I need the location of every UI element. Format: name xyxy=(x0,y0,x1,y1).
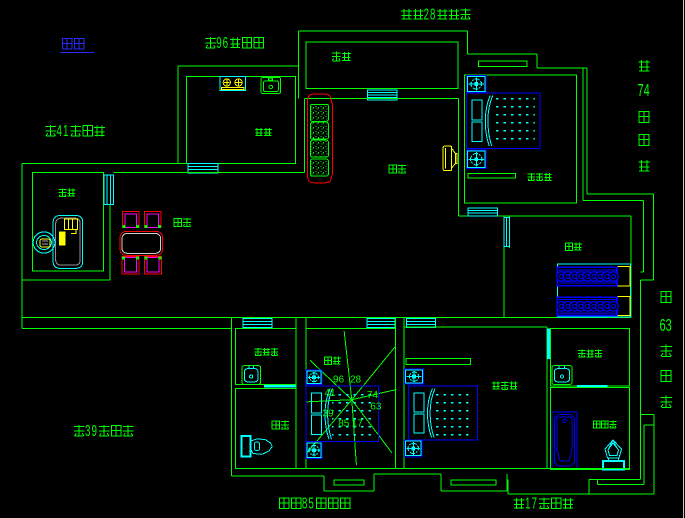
svg-text:85: 85 xyxy=(338,419,350,430)
svg-text:28: 28 xyxy=(350,375,362,386)
svg-text:1: 1 xyxy=(525,494,530,512)
svg-text:1: 1 xyxy=(63,122,68,140)
svg-text:8: 8 xyxy=(430,5,435,23)
svg-text:74: 74 xyxy=(367,390,379,401)
svg-text:96: 96 xyxy=(333,375,345,386)
svg-text:3: 3 xyxy=(85,422,90,440)
svg-text:4: 4 xyxy=(56,122,61,140)
svg-text:9: 9 xyxy=(216,34,221,52)
svg-text:63: 63 xyxy=(370,402,382,413)
svg-text:7: 7 xyxy=(531,494,536,512)
svg-text:9: 9 xyxy=(91,422,96,440)
svg-text:8: 8 xyxy=(302,494,307,512)
svg-text:2: 2 xyxy=(424,5,429,23)
svg-text:17: 17 xyxy=(352,419,364,430)
svg-text:63: 63 xyxy=(660,317,672,336)
svg-text:74: 74 xyxy=(638,82,650,101)
svg-text:5: 5 xyxy=(308,494,313,512)
svg-text:6: 6 xyxy=(223,34,228,52)
svg-text:39: 39 xyxy=(323,408,335,419)
svg-text:41: 41 xyxy=(325,388,337,399)
